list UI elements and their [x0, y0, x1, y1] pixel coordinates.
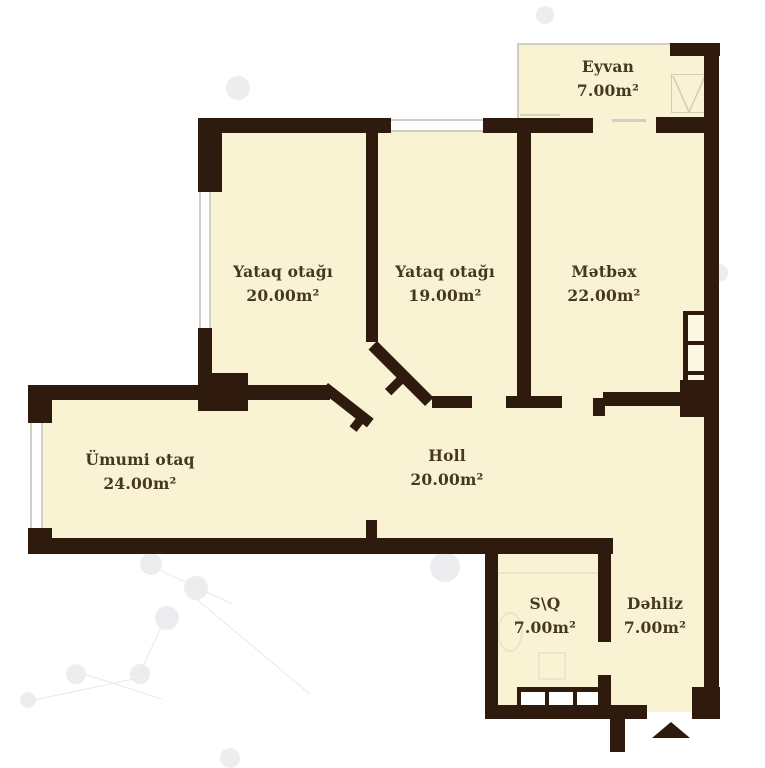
- window: [390, 119, 484, 132]
- room-name: Mətbəx: [514, 260, 694, 284]
- room-area: 20.00m²: [193, 284, 373, 308]
- wall: [692, 687, 720, 719]
- wall: [28, 385, 330, 400]
- room-area: 7.00m²: [518, 79, 698, 103]
- wall: [366, 520, 377, 540]
- background-dot: [536, 6, 554, 24]
- room-name: Dəhliz: [605, 592, 705, 616]
- entrance-arrow-icon: [652, 722, 690, 738]
- wall: [198, 118, 391, 133]
- wall: [366, 130, 378, 342]
- background-dot: [226, 76, 250, 100]
- background-line: [195, 598, 311, 695]
- wall: [28, 538, 613, 554]
- room-name: Ümumi otaq: [50, 448, 230, 472]
- background-dot: [220, 748, 240, 768]
- wall: [680, 380, 706, 417]
- wall: [593, 398, 605, 416]
- bathroom-toilet: [538, 652, 566, 680]
- room-area: 20.00m²: [357, 468, 537, 492]
- wall: [506, 396, 562, 408]
- room-name: S\Q: [495, 592, 595, 616]
- background-dot: [430, 552, 460, 582]
- balcony-rail: [517, 43, 674, 45]
- room-label-dehliz: Dəhliz 7.00m²: [605, 592, 705, 640]
- room-label-metbex: Mətbəx 22.00m²: [514, 260, 694, 308]
- background-dot: [66, 664, 86, 684]
- room-label-sq: S\Q 7.00m²: [495, 592, 595, 640]
- wall: [28, 385, 52, 423]
- room-label-yataq-20: Yataq otağı 20.00m²: [193, 260, 373, 308]
- wall: [598, 675, 611, 707]
- room-area: 19.00m²: [355, 284, 535, 308]
- floor-plan: Eyvan 7.00m² Yataq otağı 20.00m² Yataq o…: [0, 0, 765, 768]
- background-line: [140, 618, 166, 673]
- room-label-umumi: Ümumi otaq 24.00m²: [50, 448, 230, 496]
- room-area: 22.00m²: [514, 284, 694, 308]
- wall: [704, 43, 719, 719]
- window: [30, 423, 43, 529]
- room-area: 24.00m²: [50, 472, 230, 496]
- bathroom-cabinet: [517, 687, 599, 707]
- wall: [432, 396, 472, 408]
- background-dot: [155, 606, 179, 630]
- room-label-eyvan: Eyvan 7.00m²: [518, 55, 698, 103]
- room-label-yataq-19: Yataq otağı 19.00m²: [355, 260, 535, 308]
- background-dot: [130, 664, 150, 684]
- room-name: Holl: [357, 444, 537, 468]
- room-area: 7.00m²: [495, 616, 595, 640]
- wall: [610, 719, 625, 752]
- background-line: [32, 677, 140, 701]
- bathroom-line: [498, 572, 598, 574]
- room-name: Eyvan: [518, 55, 698, 79]
- wall: [198, 118, 222, 192]
- room-label-holl: Holl 20.00m²: [357, 444, 537, 492]
- room-name: Yataq otağı: [193, 260, 373, 284]
- background-dot: [140, 553, 162, 575]
- wall: [485, 705, 647, 719]
- wall: [603, 392, 684, 406]
- balcony-threshold: [612, 119, 646, 122]
- wall: [483, 118, 593, 133]
- room-area: 7.00m²: [605, 616, 705, 640]
- wall: [656, 117, 706, 133]
- room-name: Yataq otağı: [355, 260, 535, 284]
